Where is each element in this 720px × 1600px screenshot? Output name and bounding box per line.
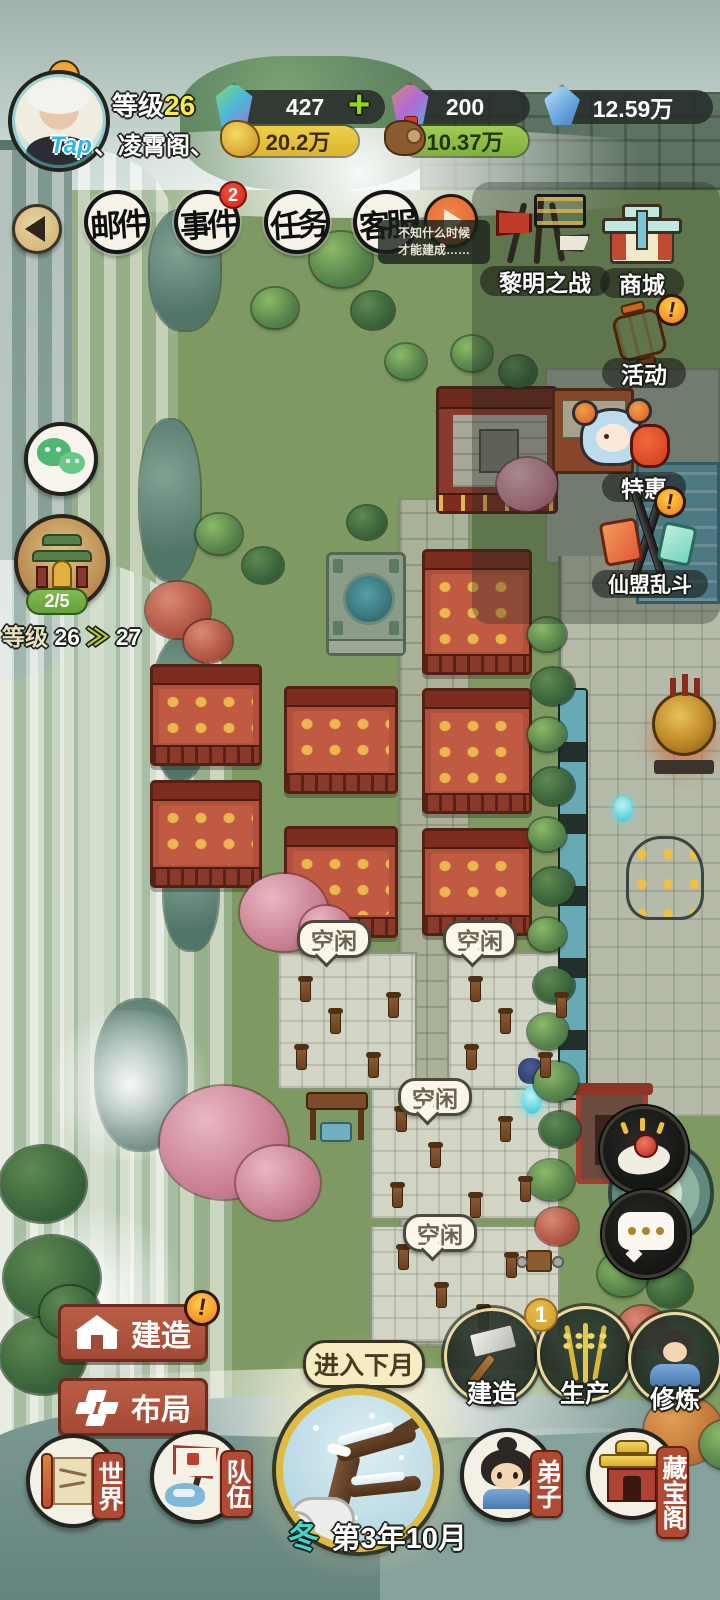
shop-icon bbox=[602, 204, 682, 268]
dorm-building[interactable] bbox=[284, 686, 398, 794]
training-post bbox=[388, 996, 399, 1018]
idle-bubble[interactable]: 空闲 bbox=[443, 920, 517, 958]
dorm-building[interactable] bbox=[422, 688, 532, 814]
sect-progress-badge: 2/5 bbox=[26, 588, 88, 615]
training-post bbox=[470, 1196, 481, 1218]
tree bbox=[532, 668, 574, 705]
tree bbox=[236, 1146, 320, 1220]
produce-badge: 1 bbox=[524, 1298, 558, 1332]
arrow-left-icon bbox=[25, 216, 45, 242]
idle-bubble[interactable]: 空闲 bbox=[297, 920, 371, 958]
stone-shrine bbox=[326, 552, 406, 656]
tooltip-line1: 不知什么时候 bbox=[378, 225, 490, 242]
sect-upgrade-button[interactable]: 2/5 bbox=[14, 514, 110, 610]
team-label: 队伍 bbox=[220, 1450, 253, 1518]
add-gems-button[interactable]: + bbox=[348, 84, 370, 127]
build-action-label: 建造 bbox=[444, 1374, 540, 1410]
incense-burner bbox=[648, 678, 720, 774]
produce-action-label: 生产 bbox=[537, 1374, 633, 1410]
training-post bbox=[330, 1012, 341, 1034]
dawn-battle-button[interactable]: 黎明之战 bbox=[494, 194, 594, 298]
level-value: 26 bbox=[164, 90, 195, 121]
tree bbox=[540, 1112, 580, 1147]
training-post bbox=[500, 1120, 511, 1142]
dawn-battle-label: 黎明之战 bbox=[480, 266, 610, 296]
chat-dots-icon bbox=[618, 1212, 674, 1256]
season-label: 冬 bbox=[288, 1520, 319, 1555]
avatar-tap-label: Tap bbox=[50, 132, 92, 160]
tree bbox=[532, 868, 574, 905]
date-label: 第3年10月 bbox=[331, 1523, 466, 1555]
alchemy-furnace bbox=[626, 836, 704, 920]
spirit-orb bbox=[614, 796, 632, 822]
mail-button[interactable]: 邮件 bbox=[84, 190, 150, 254]
training-post bbox=[392, 1186, 403, 1208]
level-label: 等级 bbox=[112, 91, 164, 121]
layout-menu-button[interactable]: 布局 bbox=[58, 1378, 208, 1436]
gold-icon bbox=[220, 120, 260, 158]
activity-label: 活动 bbox=[602, 358, 686, 388]
next-month-bubble[interactable]: 进入下月 bbox=[303, 1340, 425, 1388]
sect-level-from: 26 bbox=[54, 624, 80, 650]
girl-icon bbox=[566, 398, 676, 478]
chevron-right-icon: ≫ bbox=[86, 624, 109, 650]
training-post bbox=[466, 1048, 477, 1070]
idle-bubble[interactable]: 空闲 bbox=[403, 1214, 477, 1252]
dorm-building[interactable] bbox=[150, 664, 262, 766]
training-post bbox=[520, 1180, 531, 1202]
activity-button[interactable]: ! 活动 bbox=[600, 300, 688, 390]
training-post bbox=[300, 980, 311, 1002]
player-level: 等级26 bbox=[112, 86, 195, 123]
battle-flags-icon bbox=[494, 194, 594, 266]
tree bbox=[196, 514, 242, 554]
cultivate-action-label: 修炼 bbox=[628, 1380, 720, 1416]
tree bbox=[528, 1160, 574, 1200]
wechat-icon bbox=[37, 438, 85, 480]
sect-level-label: 等级 bbox=[2, 624, 48, 650]
dorm-building[interactable] bbox=[150, 780, 262, 888]
training-post bbox=[540, 1056, 551, 1078]
training-post bbox=[500, 1012, 511, 1034]
idle-bubble[interactable]: 空闲 bbox=[398, 1078, 472, 1116]
training-post bbox=[436, 1286, 447, 1308]
tree bbox=[534, 968, 574, 1003]
tree bbox=[348, 506, 386, 539]
tree bbox=[184, 620, 232, 662]
collapse-button[interactable] bbox=[12, 204, 62, 254]
tiles-icon bbox=[75, 1390, 119, 1424]
tree bbox=[532, 768, 574, 805]
well-pavilion bbox=[306, 1092, 368, 1148]
sect-name: 、凌霄阁、 bbox=[94, 126, 214, 161]
tree bbox=[536, 1208, 578, 1245]
sect-pavilion-icon bbox=[30, 534, 94, 590]
house-icon bbox=[75, 1315, 119, 1351]
alliance-brawl-label: 仙盟乱斗 bbox=[592, 570, 708, 598]
disciple-icon bbox=[477, 1443, 537, 1507]
disciple-label: 弟子 bbox=[530, 1450, 563, 1518]
wechat-button[interactable] bbox=[24, 422, 98, 496]
tree bbox=[252, 288, 298, 328]
training-post bbox=[296, 1048, 307, 1070]
world-label: 世界 bbox=[92, 1452, 125, 1520]
wood-icon bbox=[384, 120, 426, 156]
tree bbox=[243, 548, 283, 583]
treasure-label: 藏宝阁 bbox=[656, 1446, 689, 1539]
collect-orb-button[interactable] bbox=[600, 1106, 688, 1194]
chat-button[interactable] bbox=[602, 1190, 690, 1278]
tree bbox=[528, 1014, 568, 1049]
sect-level-to: 27 bbox=[116, 624, 142, 650]
hand-orb-icon bbox=[614, 1122, 674, 1178]
training-post bbox=[470, 980, 481, 1002]
training-post bbox=[556, 996, 567, 1018]
shop-button[interactable]: 商城 bbox=[598, 204, 686, 300]
training-post bbox=[398, 1248, 409, 1270]
alliance-brawl-button[interactable]: ! 仙盟乱斗 bbox=[592, 492, 708, 600]
training-post bbox=[506, 1256, 517, 1278]
training-post bbox=[368, 1056, 379, 1078]
map-viewport[interactable]: 空闲 空闲 空闲 空闲 Tap 等级26 、凌霄阁、 427 + 200 12.… bbox=[0, 0, 720, 1600]
tree bbox=[0, 1146, 86, 1222]
npc-tooltip: 不知什么时候 才能建成…… bbox=[378, 220, 490, 264]
training-post bbox=[430, 1146, 441, 1168]
cliff-rock bbox=[140, 420, 200, 580]
tree bbox=[386, 344, 426, 379]
tooltip-line2: 才能建成…… bbox=[378, 242, 490, 259]
sect-level-progress: 等级 26 ≫ 27 bbox=[2, 618, 141, 652]
tasks-button[interactable]: 任务 bbox=[264, 190, 330, 254]
garden-table bbox=[520, 1248, 560, 1280]
game-date: 冬 第3年10月 bbox=[288, 1512, 467, 1557]
tree bbox=[352, 292, 394, 329]
events-badge: 2 bbox=[219, 181, 247, 209]
